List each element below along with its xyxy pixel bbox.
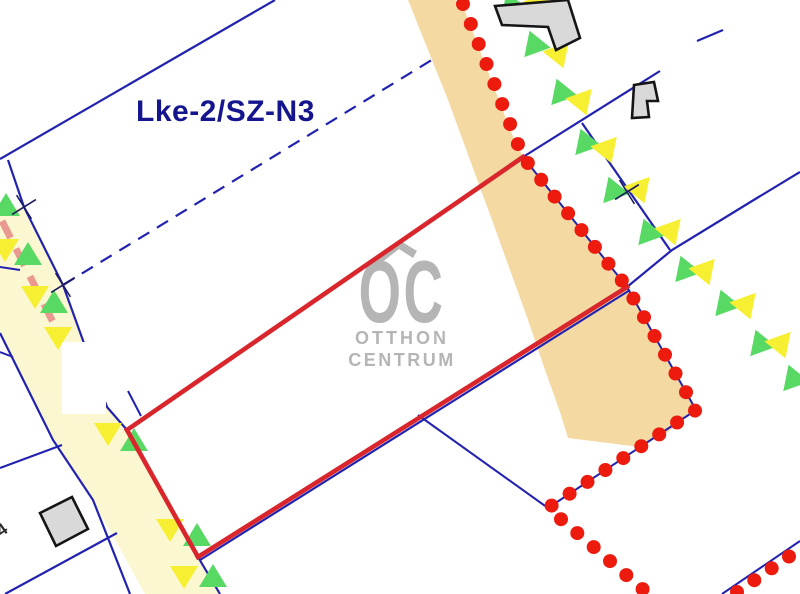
boundary-red-dot: [626, 292, 640, 306]
stub-line-above-west-corner: [128, 391, 141, 416]
boundary-red-dot: [511, 137, 525, 151]
west-branch-line-3: [0, 445, 62, 468]
building-footprint-east: [632, 82, 658, 118]
white-mask-on-road: [62, 342, 106, 414]
cadastral-map: OC OTTHON CENTRUM Lke-2/SZ-N3 4: [0, 0, 800, 594]
boundary-red-dot: [652, 427, 666, 441]
boundary-red-dot: [581, 475, 595, 489]
boundary-red-dot: [545, 499, 559, 513]
boundary-red-dot: [669, 367, 683, 381]
boundary-red-dot: [534, 173, 548, 187]
boundary-red-dot: [658, 348, 672, 362]
boundary-red-dot: [670, 416, 684, 430]
cadastral-map-svg: OC OTTHON CENTRUM Lke-2/SZ-N3 4: [0, 0, 800, 594]
boundary-red-dot: [598, 463, 612, 477]
zone-code-label: Lke-2/SZ-N3: [136, 95, 315, 128]
boundary-red-dot: [782, 550, 796, 564]
boundary-red-dot: [616, 451, 630, 465]
boundary-red-dot: [747, 573, 761, 587]
building-footprint-southwest: [40, 497, 88, 546]
boundary-red-dot: [472, 37, 486, 51]
yellow-triangle-marker: [623, 177, 657, 208]
boundary-red-dot: [648, 329, 662, 343]
watermark-logo-text: OC: [359, 243, 446, 342]
boundary-red-dot: [679, 385, 693, 399]
boundary-red-dot: [464, 17, 478, 31]
boundary-red-dot: [619, 568, 633, 582]
boundary-line-topleft: [0, 0, 275, 159]
boundary-red-dot: [601, 257, 615, 271]
boundary-red-dot: [548, 190, 562, 204]
boundary-red-dot: [575, 223, 589, 237]
boundary-red-dot: [487, 77, 501, 91]
watermark: OC OTTHON CENTRUM: [348, 240, 456, 370]
boundary-red-dot: [495, 97, 509, 111]
boundary-red-dot: [637, 310, 651, 324]
inner-split-line: [418, 415, 548, 508]
boundary-red-dot: [587, 540, 601, 554]
boundary-red-dot: [561, 206, 575, 220]
boundary-red-dot: [615, 274, 629, 288]
boundary-red-dot: [570, 526, 584, 540]
boundary-red-dot: [503, 117, 517, 131]
watermark-line1: OTTHON: [355, 328, 449, 348]
boundary-red-dot: [480, 57, 494, 71]
green-triangle-marker: [775, 360, 800, 391]
boundary-red-dot: [554, 512, 568, 526]
parcel-number-label: 4: [0, 519, 12, 540]
boundary-red-dot: [688, 404, 702, 418]
boundary-red-dot: [634, 439, 648, 453]
boundary-red-dot: [636, 582, 650, 594]
boundary-red-dot: [521, 156, 535, 170]
north-boundary-line-gap-piece: [697, 30, 723, 41]
boundary-red-dot: [603, 554, 617, 568]
boundary-red-dot: [765, 561, 779, 575]
boundary-red-dot: [588, 240, 602, 254]
boundary-red-dot: [563, 487, 577, 501]
watermark-line2: CENTRUM: [348, 350, 456, 370]
